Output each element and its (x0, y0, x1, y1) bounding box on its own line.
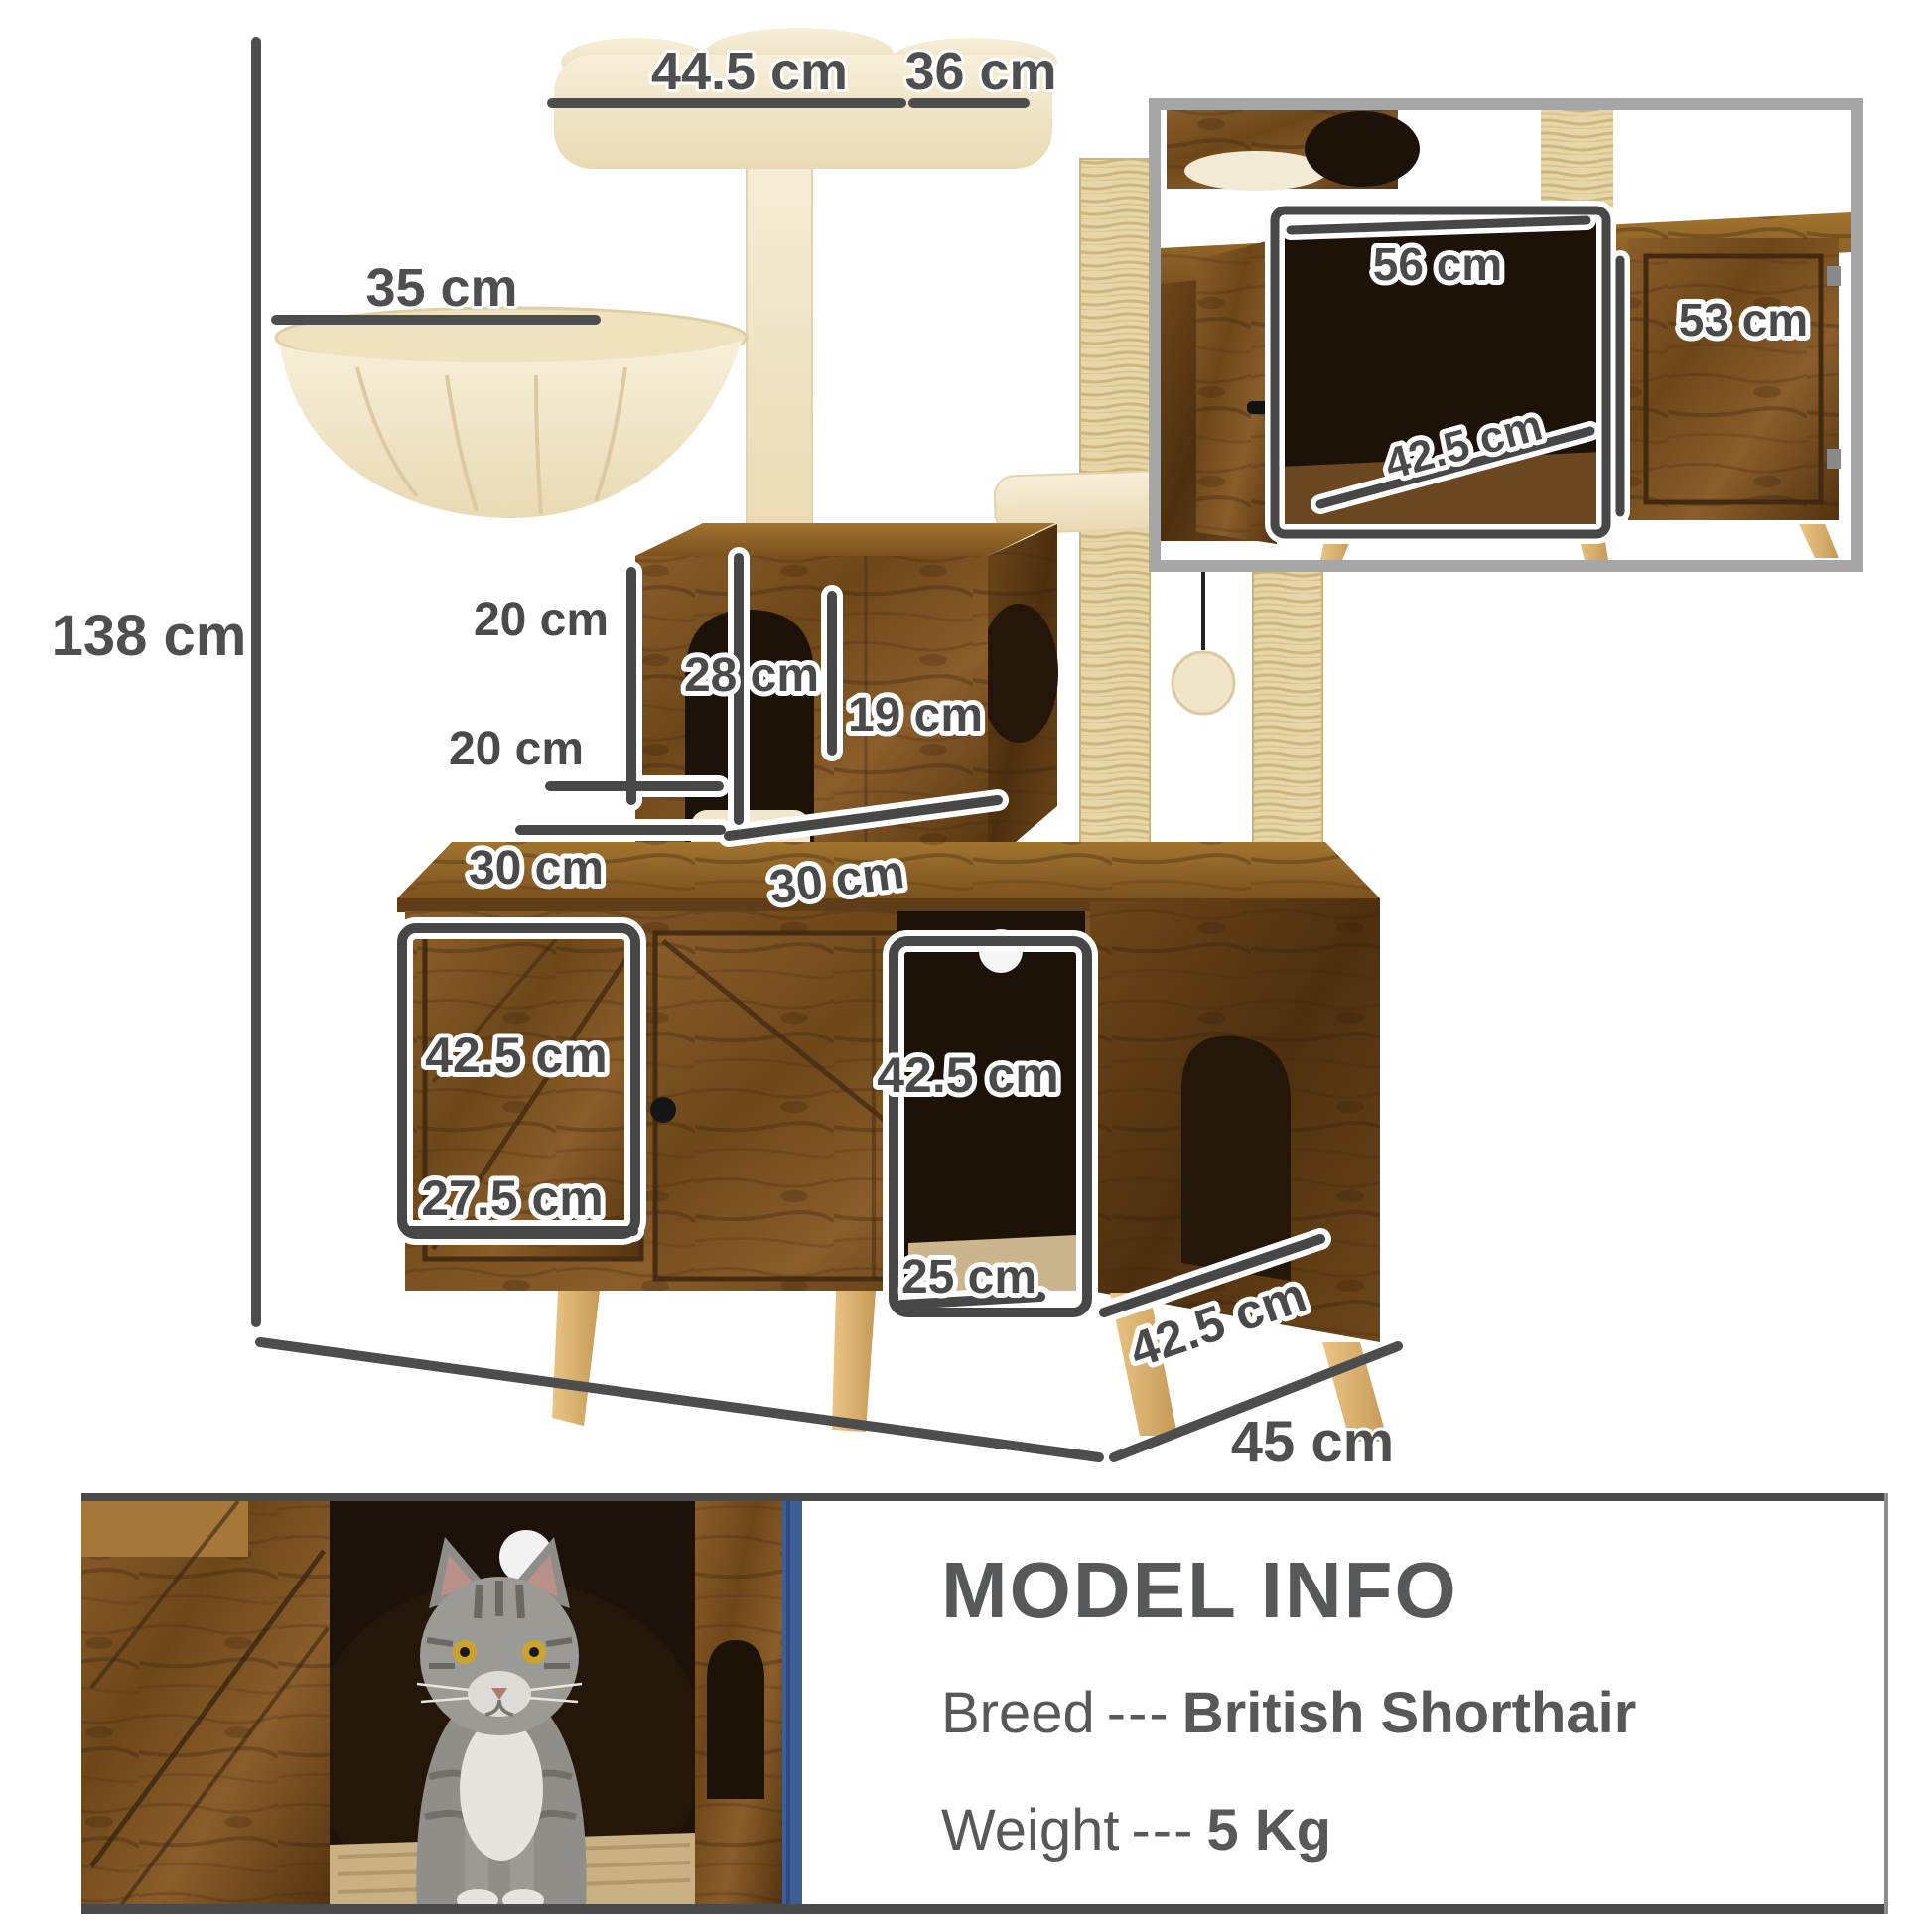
cube-side-hole (979, 604, 1058, 743)
weight-label: Weight (941, 1798, 1119, 1863)
inset-detail: 56 cm 53 cm 42.5 cm (1155, 104, 1857, 566)
photo-side-arch (707, 1640, 764, 1799)
weight-line: Weight---5 Kg (941, 1797, 1331, 1863)
bottom-section-right-border (1884, 1493, 1888, 1914)
dim-label-hammock-width: 35 cm (365, 258, 517, 318)
plush-post (747, 119, 812, 544)
product-dimension-diagram: 44.5 cm 36 cm 35 cm 138 cm 20 cm 28 cm 1… (0, 0, 1932, 1932)
cabinet-leg (832, 1291, 876, 1432)
dim-label-compartment-height: 42.5 cm (877, 1047, 1058, 1103)
dim-label-compartment-width: 25 cm (901, 1251, 1036, 1304)
weight-value: 5 Kg (1206, 1798, 1331, 1863)
dim-label-cube-width-left: 30 cm (469, 842, 604, 895)
inset-label-interior-width: 56 cm (1373, 238, 1502, 290)
breed-value: British Shorthair (1182, 1681, 1637, 1745)
dim-label-post-height: 19 cm (848, 689, 983, 742)
hammock-basket (276, 308, 747, 518)
diagram-scene: 44.5 cm 36 cm 35 cm 138 cm 20 cm 28 cm 1… (0, 0, 1932, 1932)
inset-cube-hole (1305, 111, 1420, 187)
dim-label-top-width: 44.5 cm (651, 42, 848, 101)
breed-separator: --- (1107, 1681, 1171, 1745)
cat-photo (81, 1501, 802, 1916)
dim-label-overall-depth: 45 cm (1231, 1410, 1394, 1474)
inset-label-interior-height: 53 cm (1679, 294, 1808, 345)
dim-label-cube-height: 28 cm (684, 649, 819, 702)
weight-separator: --- (1131, 1798, 1194, 1863)
breed-line: Breed---British Shorthair (941, 1680, 1636, 1746)
dim-label-top-right-width: 36 cm (904, 42, 1056, 101)
bottom-section-bottom-border (81, 1904, 1888, 1914)
pom-ball-toy (1173, 652, 1234, 714)
dim-label-cube-opening-bottom: 20 cm (449, 723, 584, 775)
breed-label: Breed (941, 1681, 1095, 1745)
dim-label-door-height: 42.5 cm (425, 1028, 607, 1083)
dim-label-total-height: 138 cm (52, 604, 247, 668)
dim-label-door-width: 27.5 cm (421, 1171, 603, 1226)
door-knob (650, 1097, 676, 1123)
bottom-section-top-border (81, 1493, 1888, 1501)
cabinet-leg (552, 1291, 600, 1426)
photo-blue-curtain (782, 1501, 802, 1908)
model-info-title: MODEL INFO (941, 1545, 1458, 1636)
cat-chest (460, 1718, 543, 1861)
dim-label-cube-opening-top: 20 cm (474, 594, 609, 646)
inset-sisal-post (1541, 110, 1613, 208)
dim-line-width-85 (260, 1342, 1099, 1457)
